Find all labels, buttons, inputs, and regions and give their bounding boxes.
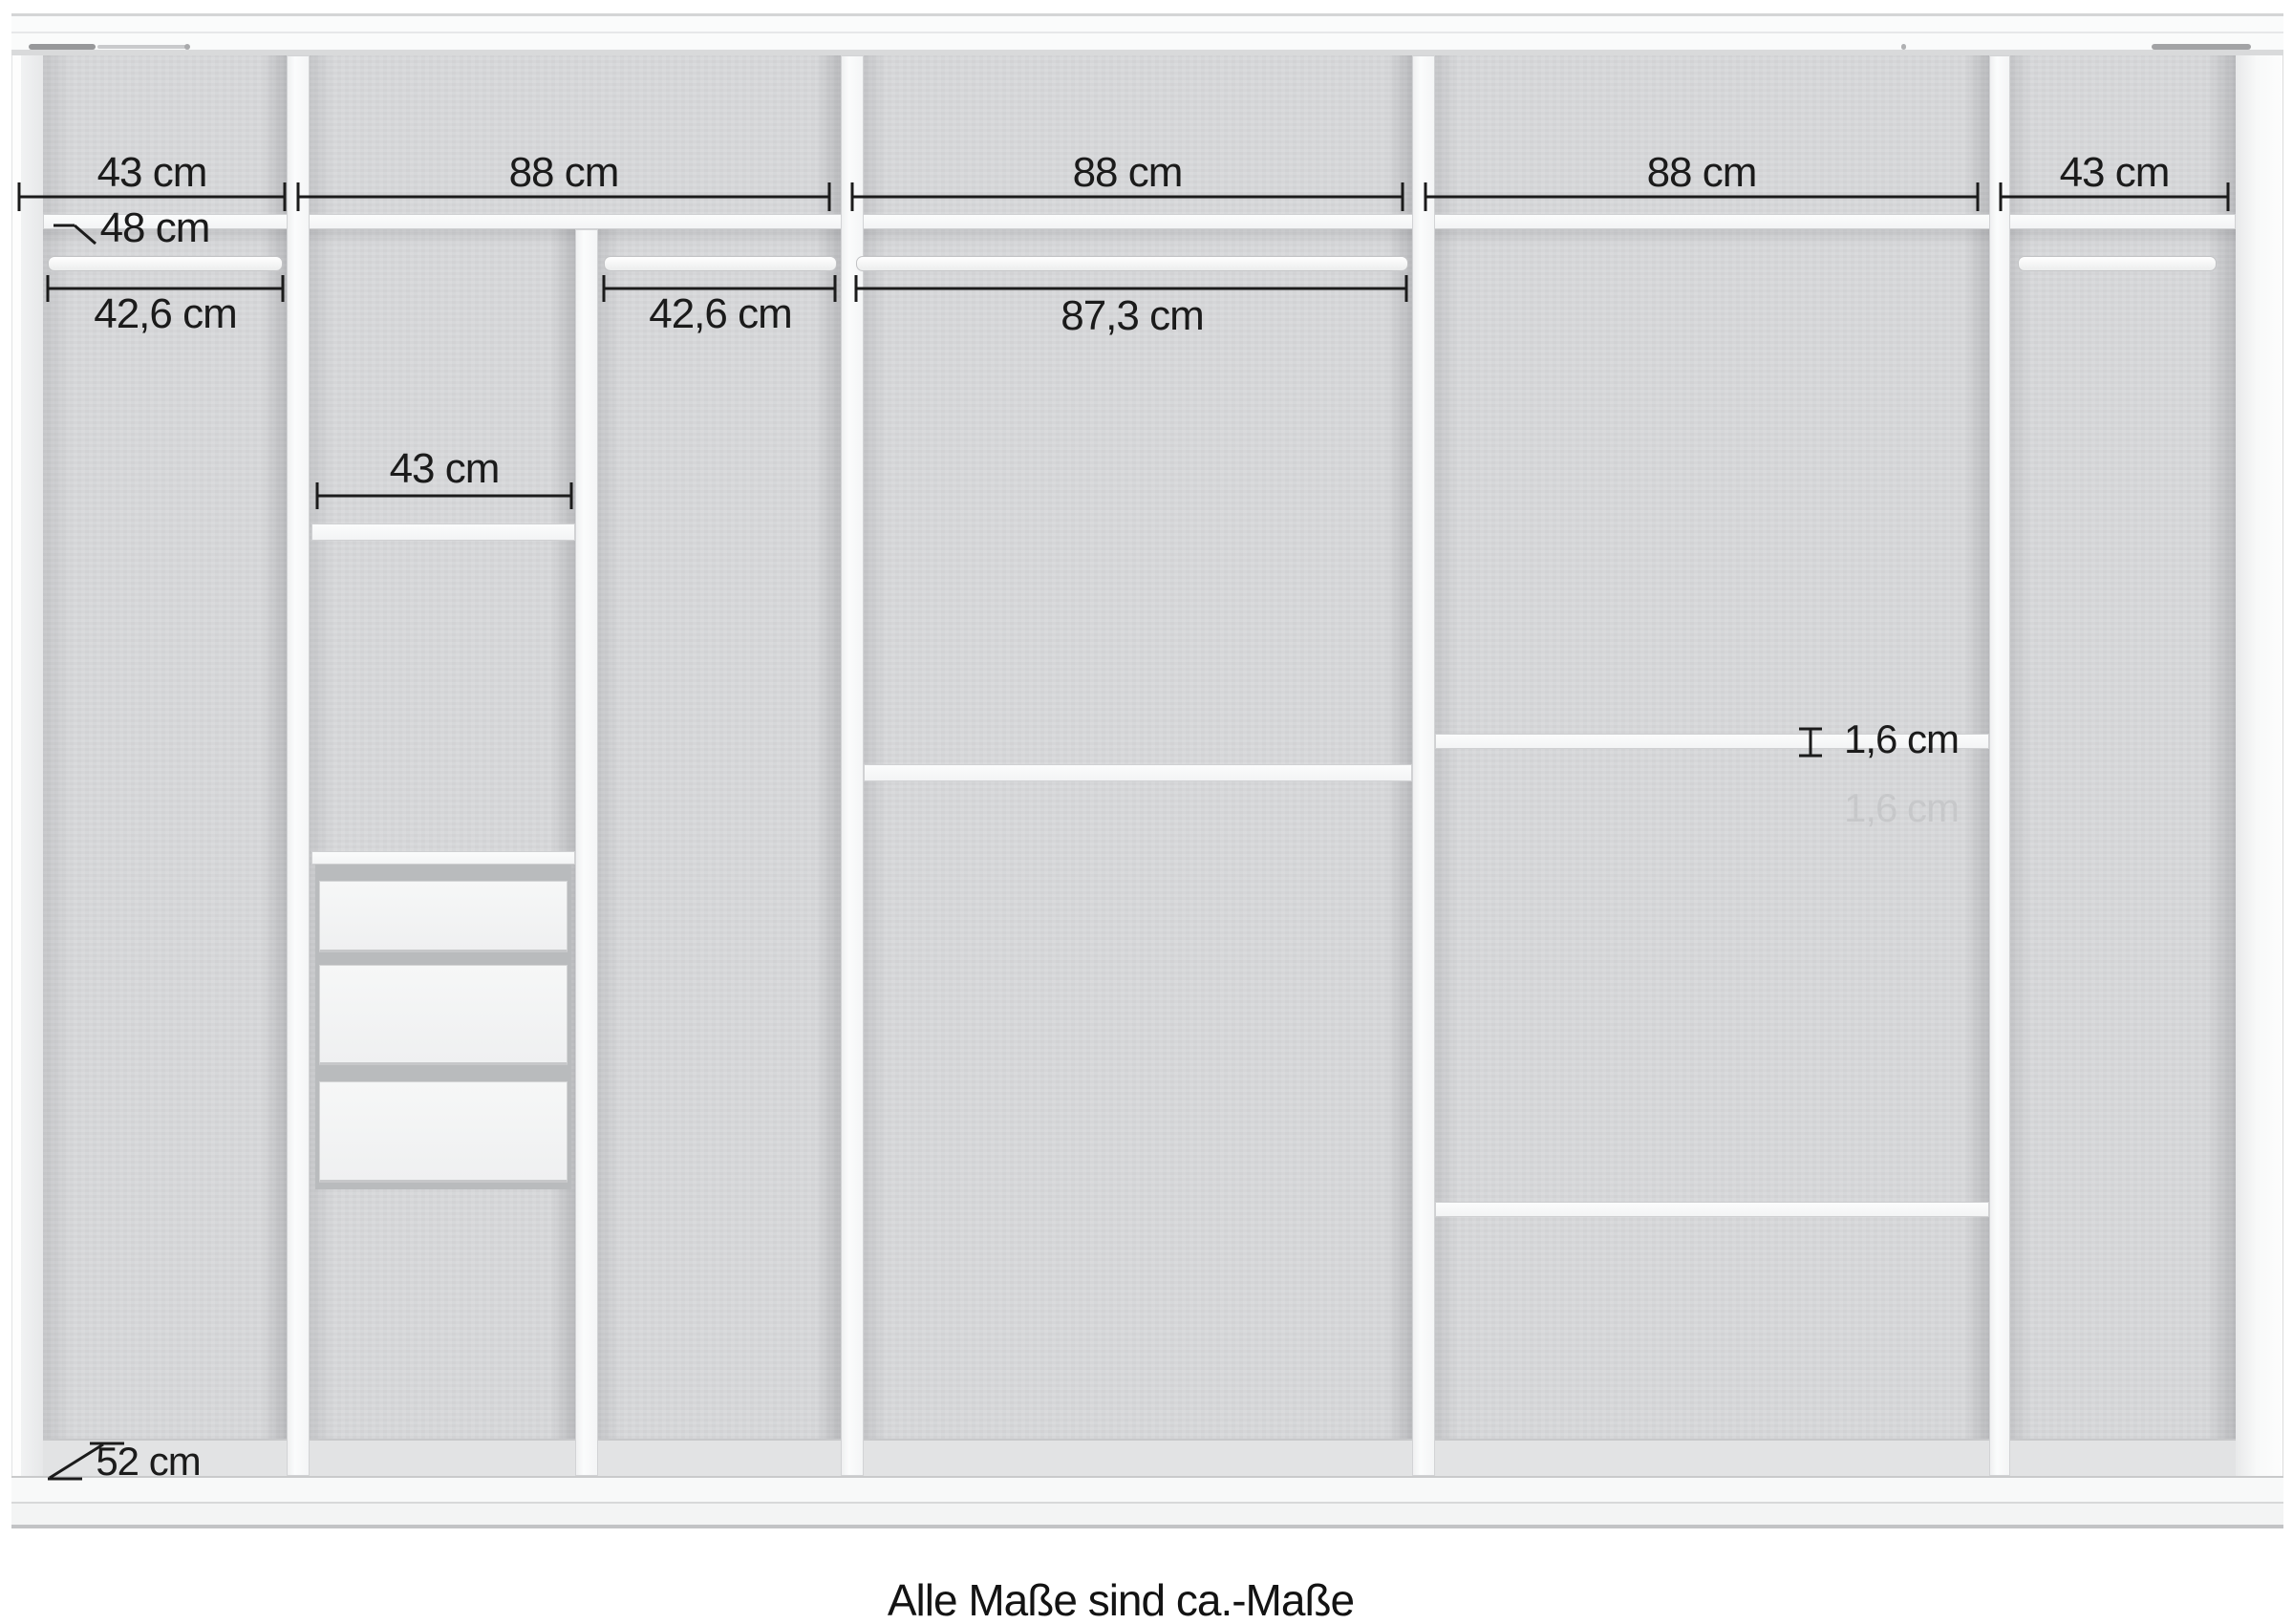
- label-rail-section-2b: 42,6 cm: [649, 292, 792, 336]
- label-rail-section-1: 42,6 cm: [94, 292, 237, 336]
- label-top-section-2: 88 cm: [509, 151, 619, 195]
- label-top-shelf-depth: 48 cm: [100, 206, 210, 250]
- label-shelf-thickness-ghost: 1,6 cm: [1844, 787, 1959, 829]
- label-shelf-column-width: 43 cm: [390, 447, 500, 491]
- label-rail-section-3: 87,3 cm: [1061, 294, 1204, 338]
- label-top-section-4: 88 cm: [1647, 151, 1757, 195]
- leader-48cm: [54, 225, 96, 244]
- marker-shelf-thickness: [1799, 729, 1822, 756]
- label-top-section-3: 88 cm: [1073, 151, 1183, 195]
- caption: Alle Maße sind ca.-Maße: [888, 1574, 1354, 1624]
- label-top-section-1: 43 cm: [97, 151, 207, 195]
- wardrobe-dimension-diagram: 43 cm 88 cm 88 cm 88 cm 43 cm 48 cm 42,6…: [0, 0, 2293, 1624]
- label-top-section-5: 43 cm: [2060, 151, 2170, 195]
- label-shelf-thickness: 1,6 cm: [1844, 718, 1959, 760]
- label-base-depth: 52 cm: [96, 1441, 200, 1483]
